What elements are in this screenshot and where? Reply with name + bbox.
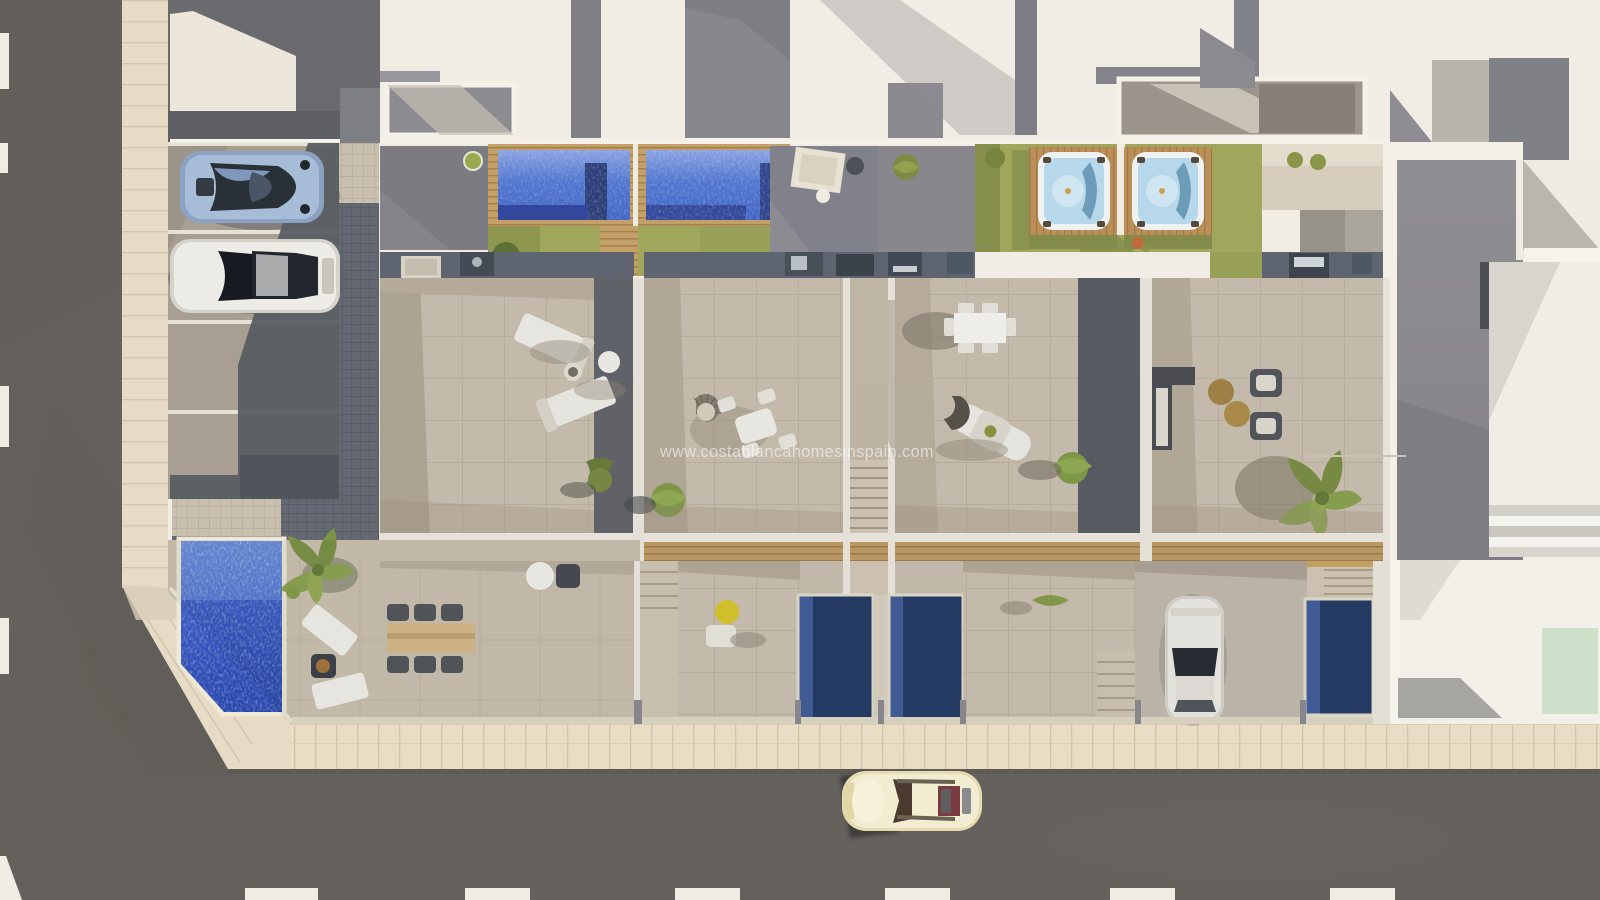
svg-text:www.costablancahomesinspain.co: www.costablancahomesinspain.com xyxy=(659,443,934,461)
